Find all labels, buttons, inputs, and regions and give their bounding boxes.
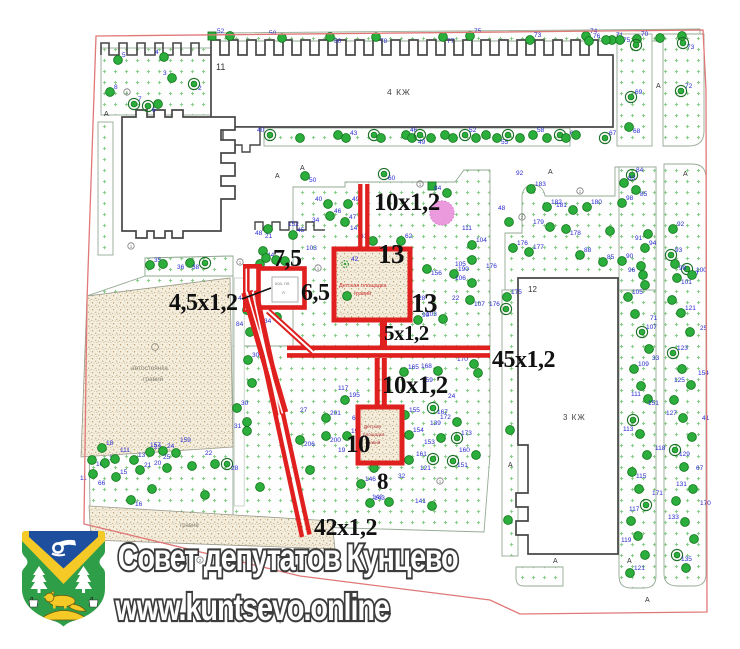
svg-text:12: 12 bbox=[528, 285, 537, 294]
svg-text:83: 83 bbox=[628, 175, 636, 182]
svg-text:60: 60 bbox=[388, 175, 396, 182]
svg-text:А: А bbox=[508, 462, 513, 469]
svg-text:91: 91 bbox=[635, 235, 643, 242]
svg-text:15: 15 bbox=[120, 469, 128, 476]
svg-text:47: 47 bbox=[349, 214, 357, 221]
svg-text:13: 13 bbox=[378, 239, 404, 269]
svg-text:11: 11 bbox=[80, 475, 87, 482]
svg-text:154: 154 bbox=[698, 370, 709, 377]
svg-text:121: 121 bbox=[420, 465, 431, 472]
svg-text:93: 93 bbox=[675, 247, 683, 254]
svg-text:А: А bbox=[627, 558, 632, 565]
svg-text:38: 38 bbox=[192, 264, 200, 271]
svg-text:гравий: гравий bbox=[354, 290, 371, 297]
svg-text:155: 155 bbox=[409, 407, 420, 414]
svg-text:77: 77 bbox=[447, 38, 455, 45]
svg-text:2: 2 bbox=[198, 85, 202, 92]
svg-text:21: 21 bbox=[265, 233, 273, 240]
svg-text:40: 40 bbox=[315, 196, 323, 203]
svg-text:90: 90 bbox=[626, 253, 634, 260]
svg-text:А: А bbox=[553, 558, 558, 565]
svg-text:200: 200 bbox=[330, 437, 341, 444]
svg-text:151: 151 bbox=[648, 400, 659, 407]
svg-text:34: 34 bbox=[312, 217, 320, 224]
svg-text:50: 50 bbox=[269, 30, 277, 37]
svg-text:71: 71 bbox=[650, 315, 658, 322]
svg-text:131: 131 bbox=[676, 481, 687, 488]
svg-text:125: 125 bbox=[674, 377, 685, 384]
svg-text:118: 118 bbox=[655, 445, 666, 452]
svg-text:А: А bbox=[104, 111, 109, 118]
svg-text:117: 117 bbox=[629, 506, 640, 513]
svg-text:176: 176 bbox=[486, 263, 497, 270]
svg-text:176: 176 bbox=[517, 240, 528, 247]
svg-text:172: 172 bbox=[440, 414, 451, 421]
svg-text:105: 105 bbox=[455, 261, 466, 268]
svg-text:121: 121 bbox=[685, 305, 696, 312]
svg-text:43: 43 bbox=[350, 130, 358, 137]
svg-text:3 КЖ: 3 КЖ bbox=[563, 413, 586, 422]
svg-text:А: А bbox=[656, 83, 661, 90]
svg-text:19: 19 bbox=[338, 447, 346, 454]
svg-text:58: 58 bbox=[537, 127, 545, 134]
svg-text:96: 96 bbox=[628, 267, 636, 274]
svg-text:Детская площадка: Детская площадка bbox=[339, 283, 388, 289]
svg-text:70: 70 bbox=[641, 31, 649, 38]
svg-text:46: 46 bbox=[334, 208, 342, 215]
svg-text:85: 85 bbox=[640, 191, 648, 198]
svg-text:27: 27 bbox=[300, 407, 308, 414]
svg-text:157: 157 bbox=[150, 442, 161, 449]
svg-text:103: 103 bbox=[306, 245, 317, 252]
svg-text:8: 8 bbox=[377, 469, 388, 494]
svg-text:30: 30 bbox=[241, 400, 249, 407]
svg-text:13: 13 bbox=[411, 288, 437, 318]
svg-text:36: 36 bbox=[177, 264, 185, 271]
svg-text:139: 139 bbox=[430, 420, 441, 427]
svg-text:170: 170 bbox=[700, 500, 711, 507]
svg-text:152: 152 bbox=[288, 221, 299, 228]
svg-text:107: 107 bbox=[646, 324, 657, 331]
svg-text:гравий: гравий bbox=[180, 522, 199, 529]
svg-text:98: 98 bbox=[679, 265, 687, 272]
svg-text:22: 22 bbox=[452, 295, 460, 302]
svg-text:5x1,2: 5x1,2 bbox=[384, 321, 429, 345]
svg-text:28: 28 bbox=[231, 465, 239, 472]
svg-text:49: 49 bbox=[418, 139, 426, 146]
svg-text:22: 22 bbox=[205, 450, 213, 457]
svg-text:5: 5 bbox=[122, 52, 126, 59]
svg-text:Детская: Детская bbox=[364, 424, 382, 429]
svg-text:129: 129 bbox=[679, 451, 690, 458]
svg-text:88: 88 bbox=[584, 247, 592, 254]
svg-text:25: 25 bbox=[163, 454, 171, 461]
svg-text:113: 113 bbox=[623, 426, 634, 433]
svg-text:62: 62 bbox=[405, 233, 413, 240]
svg-text:98: 98 bbox=[626, 195, 634, 202]
svg-text:72: 72 bbox=[685, 83, 693, 90]
svg-text:106: 106 bbox=[455, 275, 466, 282]
svg-text:161: 161 bbox=[416, 451, 427, 458]
svg-text:А: А bbox=[645, 597, 650, 604]
svg-text:165: 165 bbox=[408, 364, 419, 371]
svg-text:20: 20 bbox=[154, 460, 162, 467]
svg-text:30: 30 bbox=[252, 352, 260, 359]
svg-text:135: 135 bbox=[681, 556, 692, 563]
svg-text:183: 183 bbox=[535, 181, 546, 188]
svg-text:13: 13 bbox=[138, 452, 146, 459]
svg-text:4 КЖ: 4 КЖ bbox=[387, 87, 411, 97]
svg-text:100: 100 bbox=[696, 267, 707, 274]
svg-text:11: 11 bbox=[216, 62, 225, 72]
svg-text:115: 115 bbox=[636, 473, 647, 480]
svg-text:50: 50 bbox=[334, 38, 342, 45]
svg-text:105: 105 bbox=[632, 289, 643, 296]
svg-text:А: А bbox=[548, 169, 553, 176]
svg-text:156: 156 bbox=[431, 270, 442, 277]
svg-text:42: 42 bbox=[351, 256, 359, 263]
svg-text:104: 104 bbox=[476, 237, 487, 244]
svg-text:4,5x1,2: 4,5x1,2 bbox=[169, 290, 238, 316]
svg-text:автостоянка: автостоянка bbox=[131, 365, 168, 372]
svg-text:123: 123 bbox=[677, 345, 688, 352]
svg-text:206: 206 bbox=[304, 441, 315, 448]
svg-text:92: 92 bbox=[516, 170, 524, 177]
svg-text:154: 154 bbox=[413, 427, 424, 434]
svg-text:67: 67 bbox=[609, 130, 617, 137]
svg-text:75: 75 bbox=[474, 28, 482, 35]
svg-text:201: 201 bbox=[330, 410, 341, 417]
svg-text:173: 173 bbox=[461, 430, 472, 437]
svg-text:45x1,2: 45x1,2 bbox=[492, 347, 555, 373]
svg-text:171: 171 bbox=[652, 490, 663, 497]
svg-text:177: 177 bbox=[533, 244, 544, 251]
svg-text:168: 168 bbox=[421, 363, 432, 370]
svg-text:142: 142 bbox=[372, 494, 383, 501]
svg-text:76: 76 bbox=[593, 33, 601, 40]
svg-text:7,5: 7,5 bbox=[273, 246, 302, 272]
svg-text:92: 92 bbox=[677, 221, 685, 228]
svg-text:160: 160 bbox=[459, 447, 470, 454]
svg-text:45: 45 bbox=[297, 227, 305, 234]
svg-text:31: 31 bbox=[234, 423, 242, 430]
svg-text:127: 127 bbox=[666, 410, 677, 417]
svg-text:195: 195 bbox=[349, 392, 360, 399]
svg-text:109: 109 bbox=[638, 361, 649, 368]
svg-text:4: 4 bbox=[155, 49, 159, 56]
svg-text:133: 133 bbox=[668, 514, 679, 521]
svg-text:хоз. пл.: хоз. пл. bbox=[275, 281, 291, 286]
svg-text:18: 18 bbox=[106, 440, 114, 447]
svg-text:А: А bbox=[300, 165, 305, 172]
svg-text:73: 73 bbox=[687, 44, 695, 51]
svg-text:А: А bbox=[282, 290, 285, 295]
svg-text:159: 159 bbox=[180, 437, 191, 444]
svg-text:111: 111 bbox=[462, 225, 472, 232]
svg-text:153: 153 bbox=[424, 439, 435, 446]
svg-text:181: 181 bbox=[556, 202, 567, 209]
svg-text:67: 67 bbox=[696, 465, 704, 472]
svg-text:33: 33 bbox=[652, 355, 660, 362]
svg-text:3: 3 bbox=[163, 70, 167, 77]
svg-text:52: 52 bbox=[217, 28, 225, 35]
svg-text:48: 48 bbox=[255, 230, 263, 237]
svg-text:176: 176 bbox=[489, 301, 500, 308]
svg-text:40: 40 bbox=[257, 127, 265, 134]
svg-text:179: 179 bbox=[533, 219, 544, 226]
svg-text:119: 119 bbox=[621, 537, 632, 544]
svg-text:111: 111 bbox=[120, 447, 130, 454]
svg-text:111: 111 bbox=[631, 391, 641, 398]
svg-text:68: 68 bbox=[633, 128, 641, 135]
svg-text:л: л bbox=[90, 596, 93, 602]
svg-text:50: 50 bbox=[309, 177, 317, 184]
svg-text:41: 41 bbox=[702, 415, 710, 422]
svg-text:107: 107 bbox=[474, 301, 485, 308]
svg-text:73: 73 bbox=[534, 32, 542, 39]
svg-text:10x1,2: 10x1,2 bbox=[382, 372, 448, 399]
svg-text:16: 16 bbox=[135, 501, 143, 508]
svg-text:10x1,2: 10x1,2 bbox=[374, 189, 440, 216]
svg-text:10: 10 bbox=[346, 431, 370, 458]
svg-text:А: А bbox=[683, 171, 688, 178]
svg-text:24: 24 bbox=[448, 393, 456, 400]
svg-text:А: А bbox=[275, 173, 280, 180]
svg-text:175: 175 bbox=[511, 289, 522, 296]
svg-text:7: 7 bbox=[138, 96, 142, 103]
svg-text:66: 66 bbox=[98, 480, 106, 487]
svg-text:84: 84 bbox=[636, 167, 644, 174]
svg-text:www.kuntsevo.online: www.kuntsevo.online bbox=[115, 588, 390, 629]
svg-text:85: 85 bbox=[607, 254, 615, 261]
svg-text:94: 94 bbox=[649, 240, 657, 247]
svg-text:121: 121 bbox=[634, 565, 645, 572]
svg-text:78: 78 bbox=[380, 38, 388, 45]
svg-text:117: 117 bbox=[338, 385, 349, 392]
svg-text:8: 8 bbox=[114, 84, 118, 91]
svg-text:178: 178 bbox=[570, 230, 581, 237]
svg-text:84: 84 bbox=[236, 321, 244, 328]
svg-text:69: 69 bbox=[635, 89, 643, 96]
svg-text:180: 180 bbox=[591, 199, 602, 206]
svg-text:21: 21 bbox=[144, 462, 152, 469]
svg-text:гравий: гравий bbox=[143, 375, 164, 383]
svg-text:48: 48 bbox=[498, 205, 506, 212]
svg-text:146: 146 bbox=[365, 476, 376, 483]
svg-text:л: л bbox=[30, 596, 33, 602]
svg-text:101: 101 bbox=[681, 279, 692, 286]
svg-text:52: 52 bbox=[469, 127, 477, 134]
svg-text:151: 151 bbox=[457, 462, 468, 469]
svg-text:141: 141 bbox=[415, 498, 426, 505]
svg-text:6,5: 6,5 bbox=[301, 280, 330, 306]
svg-text:32: 32 bbox=[398, 473, 406, 480]
svg-text:Совет депутатов Кунцево: Совет депутатов Кунцево bbox=[118, 538, 459, 579]
